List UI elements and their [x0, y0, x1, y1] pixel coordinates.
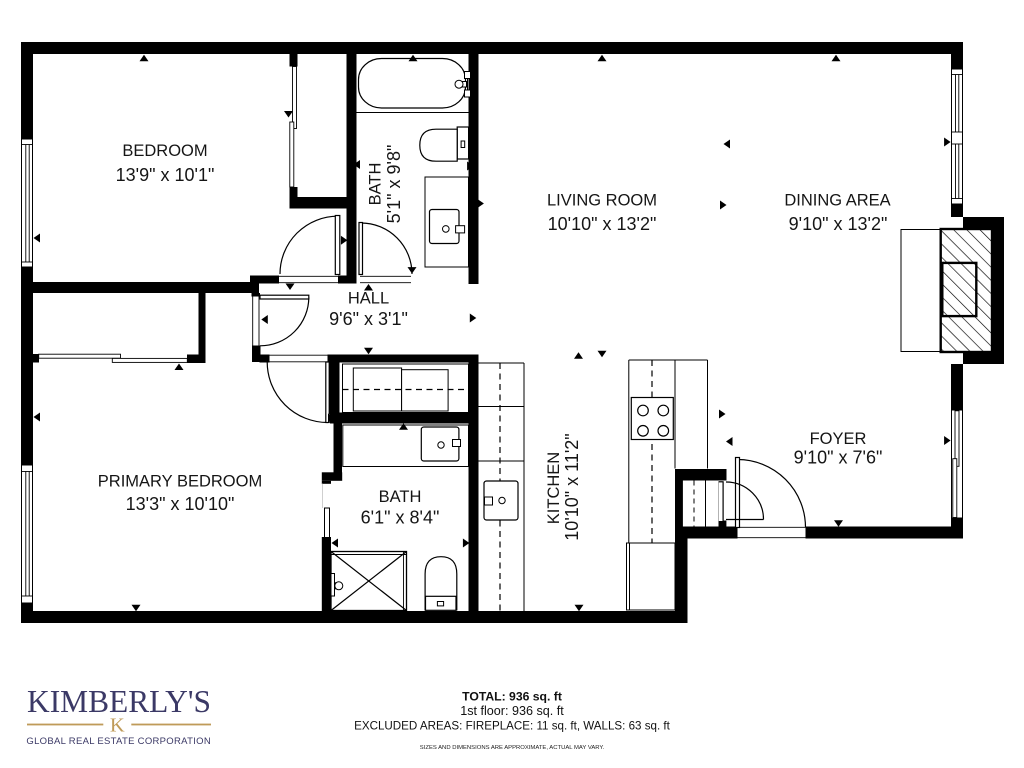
svg-text:K: K [110, 715, 125, 737]
svg-text:BEDROOM: BEDROOM [122, 142, 207, 160]
svg-text:FOYER: FOYER [810, 430, 867, 448]
svg-text:BATH: BATH [367, 163, 385, 206]
svg-text:SIZES AND DIMENSIONS ARE APPRO: SIZES AND DIMENSIONS ARE APPROXIMATE, AC… [420, 745, 605, 751]
svg-text:HALL: HALL [348, 290, 389, 308]
svg-text:6'1" x 8'4": 6'1" x 8'4" [361, 508, 440, 528]
svg-text:10'10" x 11'2": 10'10" x 11'2" [562, 433, 582, 540]
svg-text:9'10" x 7'6": 9'10" x 7'6" [794, 448, 883, 468]
svg-text:EXCLUDED AREAS: FIREPLACE: 11: EXCLUDED AREAS: FIREPLACE: 11 sq. ft, WA… [354, 720, 671, 733]
svg-text:9'10" x 13'2": 9'10" x 13'2" [789, 214, 888, 234]
svg-text:KITCHEN: KITCHEN [545, 452, 563, 524]
svg-text:GLOBAL REAL ESTATE CORPORATION: GLOBAL REAL ESTATE CORPORATION [26, 736, 211, 747]
svg-text:1st floor: 936 sq. ft: 1st floor: 936 sq. ft [460, 704, 564, 718]
svg-text:13'9" x 10'1": 13'9" x 10'1" [116, 165, 215, 185]
svg-text:5'1" x 9'8": 5'1" x 9'8" [384, 145, 404, 224]
svg-text:10'10" x 13'2": 10'10" x 13'2" [548, 214, 657, 234]
svg-text:PRIMARY BEDROOM: PRIMARY BEDROOM [98, 472, 262, 490]
svg-text:9'6" x 3'1": 9'6" x 3'1" [329, 309, 408, 329]
svg-text:DINING AREA: DINING AREA [784, 192, 890, 210]
svg-text:TOTAL: 936 sq. ft: TOTAL: 936 sq. ft [462, 690, 562, 704]
svg-text:13'3" x 10'10": 13'3" x 10'10" [126, 494, 235, 514]
svg-text:BATH: BATH [379, 488, 422, 506]
svg-text:LIVING ROOM: LIVING ROOM [547, 192, 657, 210]
